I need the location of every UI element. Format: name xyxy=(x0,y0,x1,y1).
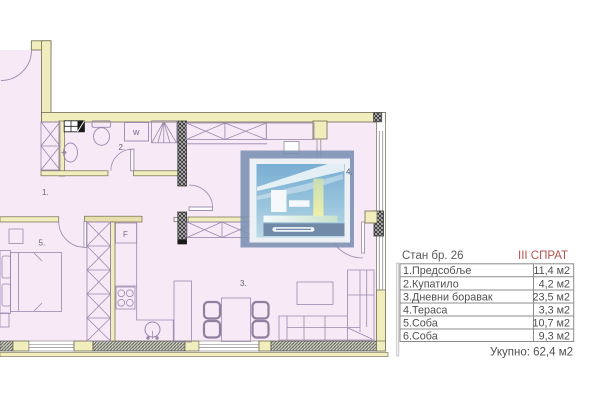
svg-text:F: F xyxy=(123,230,128,239)
svg-text:Укупно: 62,4 м2: Укупно: 62,4 м2 xyxy=(490,347,573,359)
svg-text:5.: 5. xyxy=(39,239,46,248)
svg-text:w: w xyxy=(132,127,140,137)
svg-text:6.Соба: 6.Соба xyxy=(403,330,438,342)
svg-text:10,7 м2: 10,7 м2 xyxy=(533,317,570,329)
svg-text:3,3 м2: 3,3 м2 xyxy=(539,304,570,316)
svg-text:3.: 3. xyxy=(240,279,247,288)
svg-text:11,4 м2: 11,4 м2 xyxy=(533,265,570,277)
svg-text:4.: 4. xyxy=(346,168,353,177)
svg-text:4,2 м2: 4,2 м2 xyxy=(539,278,570,290)
svg-text:9,3 м2: 9,3 м2 xyxy=(539,330,570,342)
svg-text:2.: 2. xyxy=(119,143,126,152)
svg-text:2.Купатило: 2.Купатило xyxy=(403,278,459,290)
svg-text:4.Тераса: 4.Тераса xyxy=(403,304,447,316)
svg-text:Стан бр. 26: Стан бр. 26 xyxy=(402,250,464,262)
svg-text:1.Предсобље: 1.Предсобље xyxy=(403,265,471,277)
svg-text:III СПРАТ: III СПРАТ xyxy=(518,250,568,262)
svg-text:5.Соба: 5.Соба xyxy=(403,317,438,329)
svg-text:3.Дневни боравак: 3.Дневни боравак xyxy=(403,291,493,303)
svg-text:23,5 м2: 23,5 м2 xyxy=(533,291,570,303)
svg-text:1.: 1. xyxy=(42,188,49,197)
